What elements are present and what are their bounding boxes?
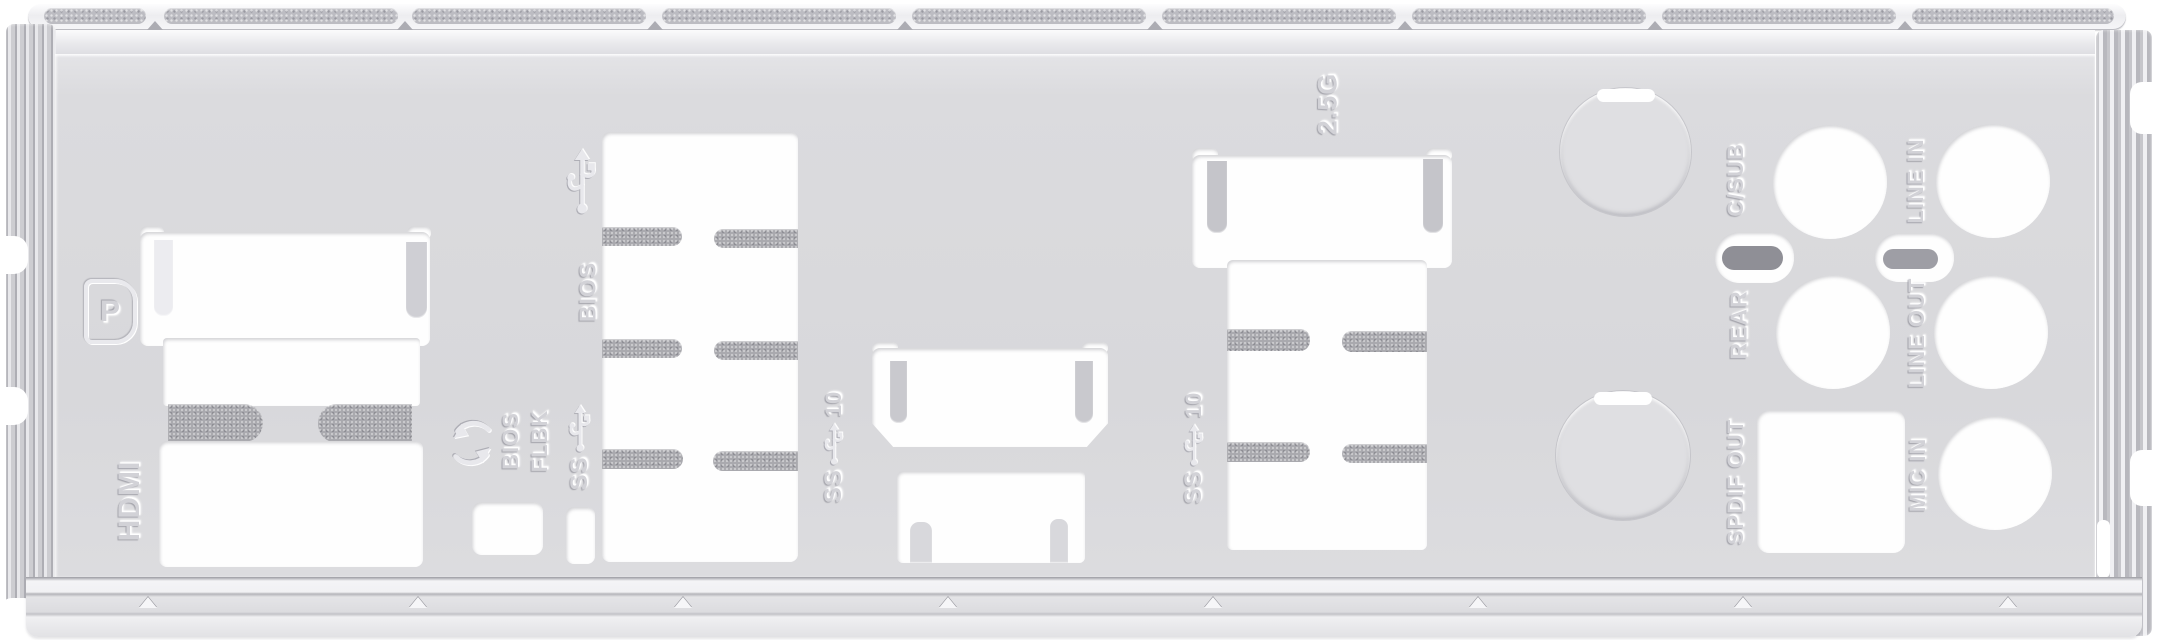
bios-flbk-label-line2: FLBK: [527, 410, 553, 473]
spring-finger: [1227, 442, 1310, 462]
audio-jack-mic-in: [1938, 416, 2052, 530]
center-hdmi-cutout: [872, 348, 1108, 447]
small-slot-cutout: [566, 507, 595, 564]
speed-text: 10: [1181, 392, 1207, 418]
io-shield-photo: P HDMI BIOS BIOS FLBK SS: [0, 0, 2158, 640]
spring-finger: [714, 341, 798, 360]
displayport-logo-letter: P: [100, 295, 121, 329]
hdmi-label: HDMI: [113, 461, 147, 542]
lan-speed-label: 2.5G: [1313, 73, 1344, 136]
emi-contact-strip: [1662, 8, 1896, 24]
top-ground-rail: [28, 4, 2126, 30]
right-flange-slot: [2097, 520, 2110, 578]
spring-finger: [602, 449, 683, 469]
knockout-circle: [1556, 391, 1690, 520]
plate-top-fold: [55, 30, 2095, 56]
audio-line-in-label: LINE IN: [1903, 138, 1929, 223]
rail-notch-tab: [1647, 21, 1663, 30]
spring-tab: [890, 361, 907, 423]
spring-tab: [1423, 159, 1443, 233]
rail-notch-tab: [1999, 597, 2017, 608]
spring-finger: [168, 404, 263, 442]
emi-contact-strip: [662, 8, 896, 24]
speed-text: 10: [821, 391, 847, 417]
usb-ss10-trident-icon: SS 10: [818, 391, 850, 504]
rail-notch-tab: [897, 21, 913, 30]
ss-text: SS: [566, 456, 594, 490]
spring-finger: [1342, 444, 1427, 463]
emi-contact-strip: [412, 8, 646, 24]
rail-notch-tab: [139, 597, 157, 608]
emi-contact-strip: [164, 8, 398, 24]
bios-flashback-button-hole: [472, 502, 543, 555]
ss-text: SS: [1180, 470, 1208, 504]
spring-tab: [910, 522, 932, 563]
rail-notch-tab: [1397, 21, 1413, 30]
left-flange-notch: [0, 387, 28, 425]
latch-tab: [1722, 246, 1783, 270]
audio-csub-label: C/SUB: [1723, 143, 1749, 216]
left-mount-flange: [6, 24, 56, 620]
displayport-cutout-neck: [163, 338, 420, 406]
bottom-ground-rail: [26, 577, 2142, 637]
usb-trident-icon: [563, 144, 601, 216]
spring-tab: [406, 242, 427, 318]
audio-rear-label: REAR: [1726, 290, 1753, 359]
bios-flbk-label-line1: BIOS: [498, 412, 524, 470]
displayport-logo-icon: P: [84, 279, 137, 344]
ss-text: SS: [820, 469, 848, 503]
rail-notch-tab: [647, 21, 663, 30]
spring-finger: [1227, 329, 1310, 351]
latch-tab: [1883, 249, 1938, 269]
spring-tab: [1207, 161, 1227, 233]
usb-ss10-trident-icon: SS 10: [1178, 392, 1210, 505]
rail-notch-tab: [939, 597, 957, 608]
rail-notch-tab: [674, 597, 692, 608]
rail-notch-tab: [409, 597, 427, 608]
spring-tab: [154, 240, 173, 316]
audio-jack-line-in: [1936, 124, 2050, 238]
spring-finger: [318, 404, 412, 443]
spring-tab: [1050, 519, 1068, 563]
bios-flashback-arrows-icon: [445, 414, 499, 472]
emi-contact-strip: [1162, 8, 1396, 24]
hdmi-cutout: [159, 441, 423, 567]
rail-notch-tab: [1204, 597, 1222, 608]
spring-tab: [1075, 361, 1093, 423]
audio-jack-rear: [1776, 275, 1890, 389]
emi-contact-strip: [1912, 8, 2114, 24]
right-flange-notch: [2130, 450, 2158, 506]
rail-notch-tab: [1734, 597, 1752, 608]
audio-jack-line-out: [1934, 275, 2048, 389]
audio-spdif-label: SPDIF OUT: [1723, 419, 1749, 545]
spring-finger: [713, 451, 798, 471]
rail-notch-tab: [147, 21, 163, 30]
knockout-circle: [1560, 88, 1691, 216]
audio-line-out-label: LINE OUT: [1904, 278, 1930, 389]
rail-notch-tab: [1897, 21, 1913, 30]
rail-notch-tab: [1469, 597, 1487, 608]
bios-usb-label: BIOS: [575, 262, 602, 322]
displayport-cutout: [140, 232, 430, 346]
usb-stack-cutout: [1227, 260, 1427, 550]
usb-ss-trident-icon: SS: [563, 401, 597, 490]
spdif-optical-cutout: [1757, 410, 1905, 553]
spring-finger: [714, 229, 798, 248]
emi-contact-strip: [44, 8, 146, 24]
spring-finger: [602, 339, 682, 358]
rail-notch-tab: [1147, 21, 1163, 30]
lan-2.5g-cutout: [1192, 155, 1452, 268]
emi-contact-strip: [1412, 8, 1646, 24]
right-flange-notch: [2130, 82, 2158, 134]
spring-finger: [602, 227, 682, 246]
emi-contact-strip: [912, 8, 1146, 24]
audio-jack-csub: [1773, 125, 1887, 239]
rail-notch-tab: [397, 21, 413, 30]
audio-mic-in-label: MIC IN: [1905, 438, 1931, 512]
spring-finger: [1342, 331, 1427, 352]
left-flange-notch: [0, 236, 28, 274]
